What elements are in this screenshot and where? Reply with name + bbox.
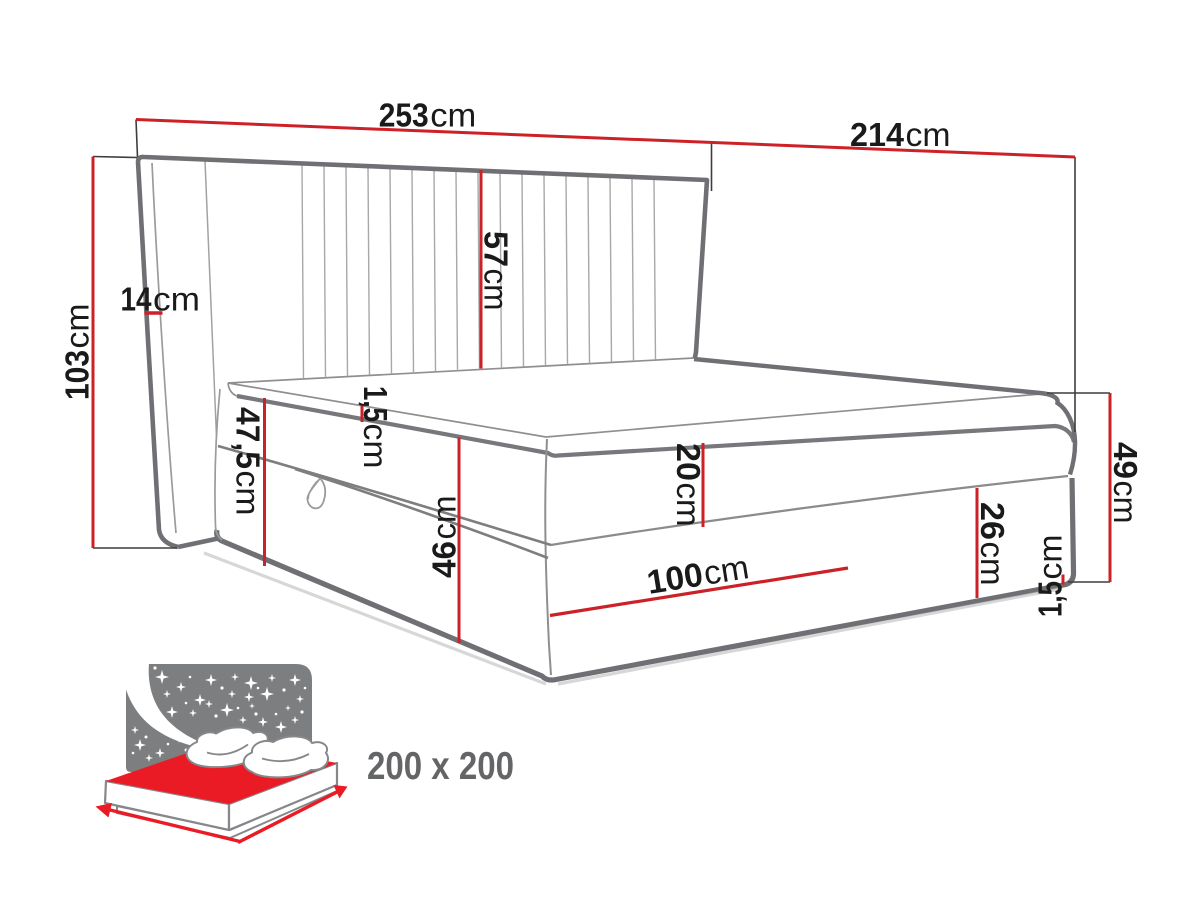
svg-text:200 x 200: 200 x 200	[367, 745, 514, 788]
svg-text:103cm: 103cm	[60, 304, 97, 401]
svg-text:1,5cm: 1,5cm	[356, 386, 393, 469]
svg-text:1,5cm: 1,5cm	[1033, 535, 1070, 618]
svg-text:20cm: 20cm	[669, 443, 706, 527]
svg-text:26cm: 26cm	[973, 502, 1010, 586]
svg-text:214cm: 214cm	[850, 117, 951, 154]
svg-text:46cm: 46cm	[427, 496, 464, 579]
svg-text:49cm: 49cm	[1106, 442, 1143, 524]
svg-text:57cm: 57cm	[477, 231, 514, 311]
svg-text:253cm: 253cm	[379, 98, 477, 135]
svg-text:14cm: 14cm	[121, 282, 201, 319]
svg-text:47,5cm: 47,5cm	[229, 407, 266, 516]
